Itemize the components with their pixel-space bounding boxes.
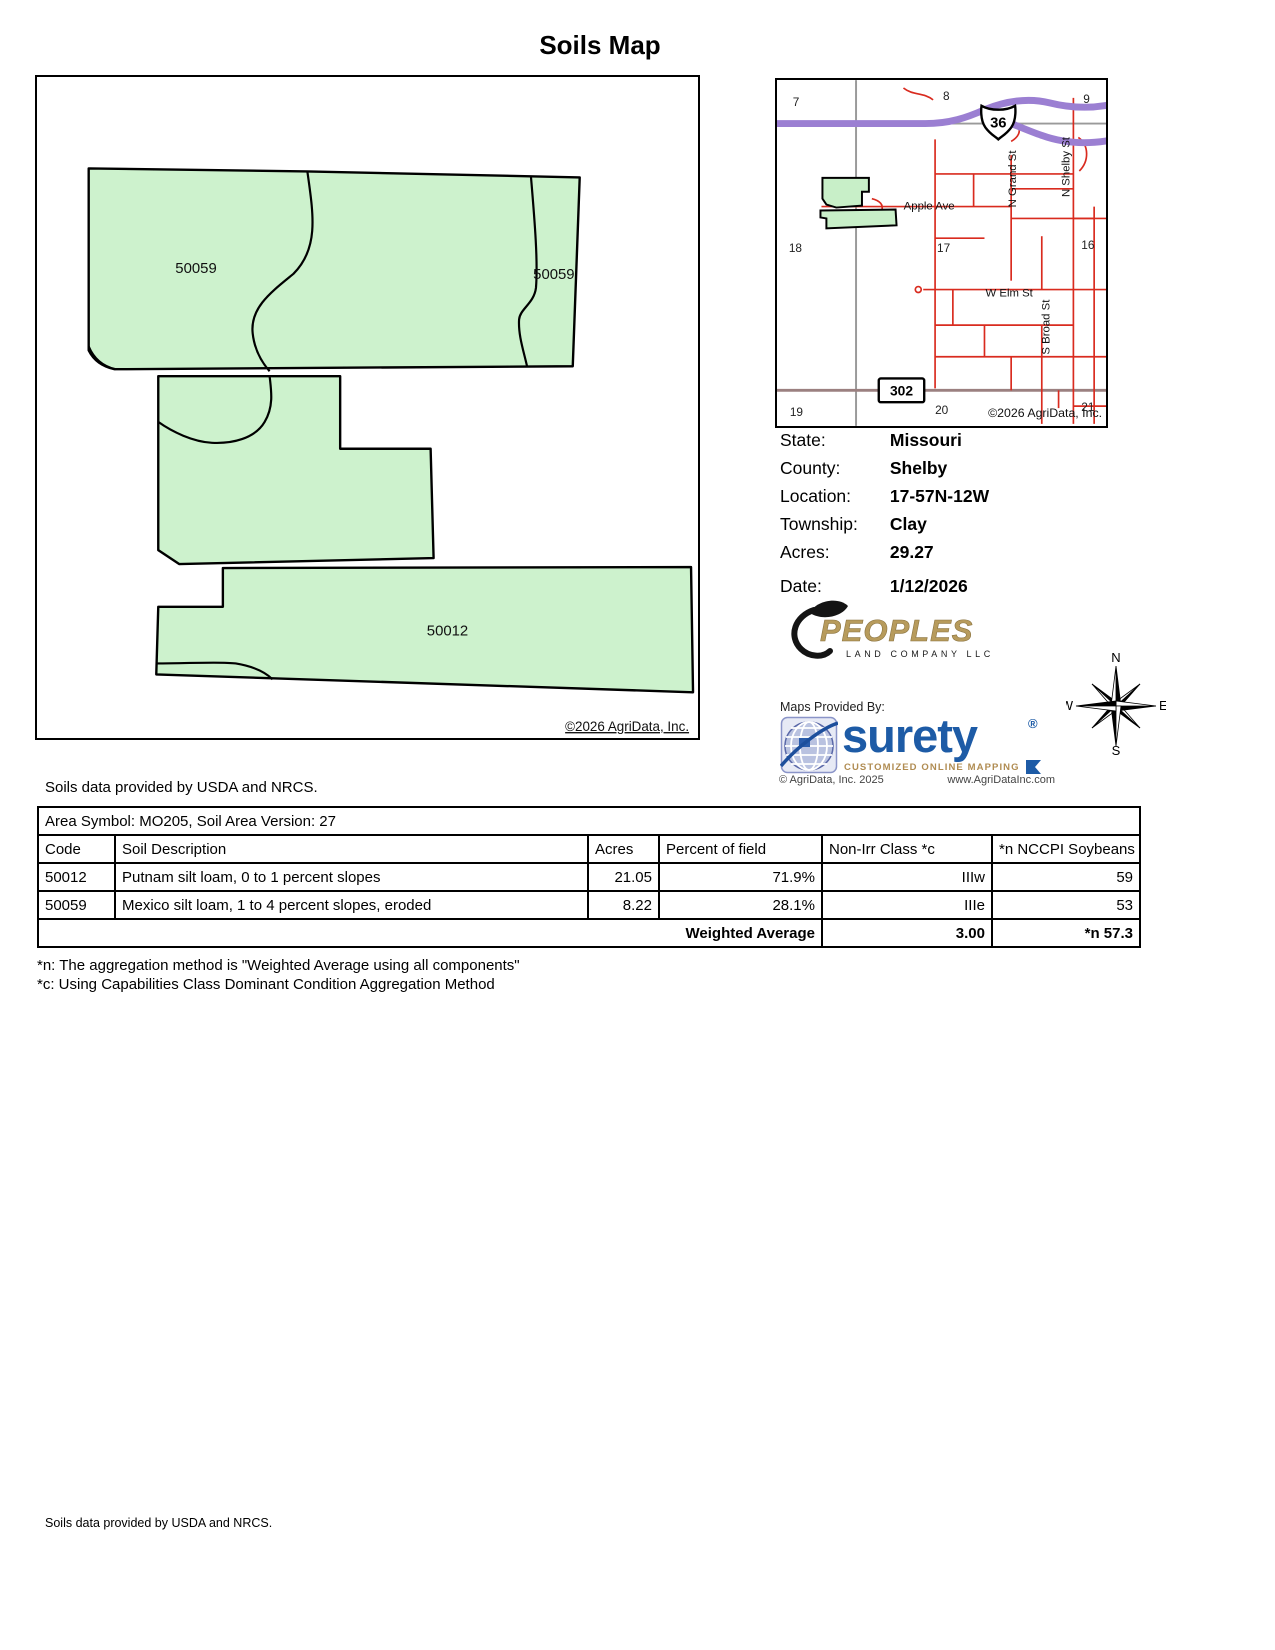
street-apple-ave: Apple Ave	[904, 201, 955, 213]
soil-label-50059-right: 50059	[533, 267, 574, 283]
section-20: 20	[935, 403, 949, 417]
soil-table: Area Symbol: MO205, Soil Area Version: 2…	[37, 806, 1141, 948]
surety-wordmark: surety	[842, 708, 977, 763]
peoples-logo-svg: PEOPLES LAND COMPANY LLC	[782, 598, 997, 662]
info-location-value: 17-57N-12W	[890, 486, 989, 506]
surety-copyright-row: © AgriData, Inc. 2025 www.AgriDataInc.co…	[779, 774, 1055, 786]
info-county-value: Shelby	[890, 458, 947, 478]
weighted-average-nccpi: *n 57.3	[992, 919, 1140, 947]
cell-code: 50059	[38, 891, 115, 919]
info-location: Location: 17-57N-12W	[780, 486, 1120, 507]
col-acres: Acres	[588, 835, 659, 863]
section-7: 7	[793, 95, 800, 109]
soil-label-50059-left: 50059	[175, 261, 216, 277]
surety-ribbon-icon	[1026, 760, 1041, 774]
info-state: State: Missouri	[780, 430, 1120, 451]
cell-code: 50012	[38, 863, 115, 891]
route-302-badge: 302	[879, 378, 924, 402]
info-state-label: State:	[780, 430, 885, 451]
info-location-label: Location:	[780, 486, 885, 507]
compass-n: N	[1111, 652, 1120, 665]
weighted-average-nonirr: 3.00	[822, 919, 992, 947]
section-9: 9	[1083, 92, 1090, 106]
cell-acres: 21.05	[588, 863, 659, 891]
street-n-shelby-st: N Shelby St	[1060, 136, 1072, 197]
section-18: 18	[789, 241, 803, 255]
cell-desc: Mexico silt loam, 1 to 4 percent slopes,…	[115, 891, 588, 919]
table-header-row: Code Soil Description Acres Percent of f…	[38, 835, 1140, 863]
surety-logo: surety ® CUSTOMIZED ONLINE MAPPING	[780, 716, 1060, 776]
table-row: 50059 Mexico silt loam, 1 to 4 percent s…	[38, 891, 1140, 919]
street-s-broad-st: S Broad St	[1041, 299, 1053, 355]
highway-36-label: 36	[990, 116, 1006, 132]
section-17: 17	[937, 241, 950, 255]
globe-icon	[780, 716, 838, 774]
col-desc: Soil Description	[115, 835, 588, 863]
section-8: 8	[943, 89, 950, 103]
footnote-c: *c: Using Capabilities Class Dominant Co…	[37, 975, 520, 994]
parcel-middle	[158, 376, 433, 564]
compass-w: W	[1066, 698, 1074, 713]
footnotes: *n: The aggregation method is "Weighted …	[37, 956, 520, 994]
info-county-label: County:	[780, 458, 885, 479]
parcel-north	[89, 168, 580, 369]
info-township: Township: Clay	[780, 514, 1120, 535]
info-township-value: Clay	[890, 514, 927, 534]
compass-e: E	[1159, 698, 1166, 713]
route-302-label: 302	[890, 382, 913, 398]
registered-mark-icon: ®	[1028, 716, 1038, 731]
soils-map-report: Soils Map 50059 50059 50012 ©2026 AgriDa…	[0, 0, 1275, 1650]
section-19: 19	[790, 405, 804, 419]
locator-copyright: ©2026 AgriData, Inc.	[988, 406, 1102, 420]
info-state-value: Missouri	[890, 430, 962, 450]
soils-map-svg: 50059 50059 50012 ©2026 AgriData, Inc.	[37, 77, 698, 738]
soils-data-note: Soils data provided by USDA and NRCS.	[45, 779, 318, 796]
info-acres-label: Acres:	[780, 542, 885, 563]
cell-nonirr: IIIe	[822, 891, 992, 919]
info-county: County: Shelby	[780, 458, 1120, 479]
info-date-value: 1/12/2026	[890, 576, 968, 596]
cell-desc: Putnam silt loam, 0 to 1 percent slopes	[115, 863, 588, 891]
map-copyright: ©2026 AgriData, Inc.	[565, 719, 689, 734]
parcel-south	[156, 567, 693, 692]
footnote-n: *n: The aggregation method is "Weighted …	[37, 956, 520, 975]
area-symbol: Area Symbol: MO205, Soil Area Version: 2…	[38, 807, 1140, 835]
col-pct: Percent of field	[659, 835, 822, 863]
peoples-subtitle: LAND COMPANY LLC	[846, 649, 994, 659]
info-acres-value: 29.27	[890, 542, 934, 562]
surety-tagline: CUSTOMIZED ONLINE MAPPING	[844, 762, 1020, 773]
highway-36-road	[777, 100, 1106, 142]
locator-map: 36 302 Apple Ave W Elm St N Grand St N S…	[775, 78, 1108, 428]
agridata-copyright: © AgriData, Inc. 2025	[779, 774, 884, 786]
section-16: 16	[1081, 238, 1095, 252]
info-township-label: Township:	[780, 514, 885, 535]
peoples-wordmark: PEOPLES	[820, 613, 973, 648]
table-row: 50012 Putnam silt loam, 0 to 1 percent s…	[38, 863, 1140, 891]
peoples-land-company-logo: PEOPLES LAND COMPANY LLC	[782, 598, 997, 662]
soils-map: 50059 50059 50012 ©2026 AgriData, Inc.	[35, 75, 700, 740]
weighted-average-label: Weighted Average	[38, 919, 822, 947]
page-title: Soils Map	[0, 30, 1200, 61]
street-w-elm-st: W Elm St	[986, 287, 1034, 299]
cell-nccpi: 59	[992, 863, 1140, 891]
agridata-website: www.AgriDataInc.com	[947, 774, 1055, 786]
cell-nccpi: 53	[992, 891, 1140, 919]
cell-pct: 71.9%	[659, 863, 822, 891]
cell-acres: 8.22	[588, 891, 659, 919]
info-acres: Acres: 29.27	[780, 542, 1120, 563]
compass-s: S	[1112, 743, 1121, 756]
soil-label-50012: 50012	[427, 624, 468, 640]
info-date-label: Date:	[780, 576, 885, 597]
info-date: Date: 1/12/2026	[780, 576, 1120, 597]
area-symbol-row: Area Symbol: MO205, Soil Area Version: 2…	[38, 807, 1140, 835]
col-nonirr: Non-Irr Class *c	[822, 835, 992, 863]
cell-nonirr: IIIw	[822, 863, 992, 891]
soils-data-note-bottom: Soils data provided by USDA and NRCS.	[45, 1516, 272, 1530]
compass-rose: N W E S	[1066, 652, 1166, 756]
col-code: Code	[38, 835, 115, 863]
col-nccpi: *n NCCPI Soybeans	[992, 835, 1140, 863]
highway-36-shield: 36	[981, 106, 1015, 140]
weighted-average-row: Weighted Average 3.00 *n 57.3	[38, 919, 1140, 947]
cell-pct: 28.1%	[659, 891, 822, 919]
street-n-grand-st: N Grand St	[1007, 150, 1019, 208]
locator-map-svg: 36 302 Apple Ave W Elm St N Grand St N S…	[777, 80, 1106, 426]
locator-parcels	[820, 178, 896, 228]
